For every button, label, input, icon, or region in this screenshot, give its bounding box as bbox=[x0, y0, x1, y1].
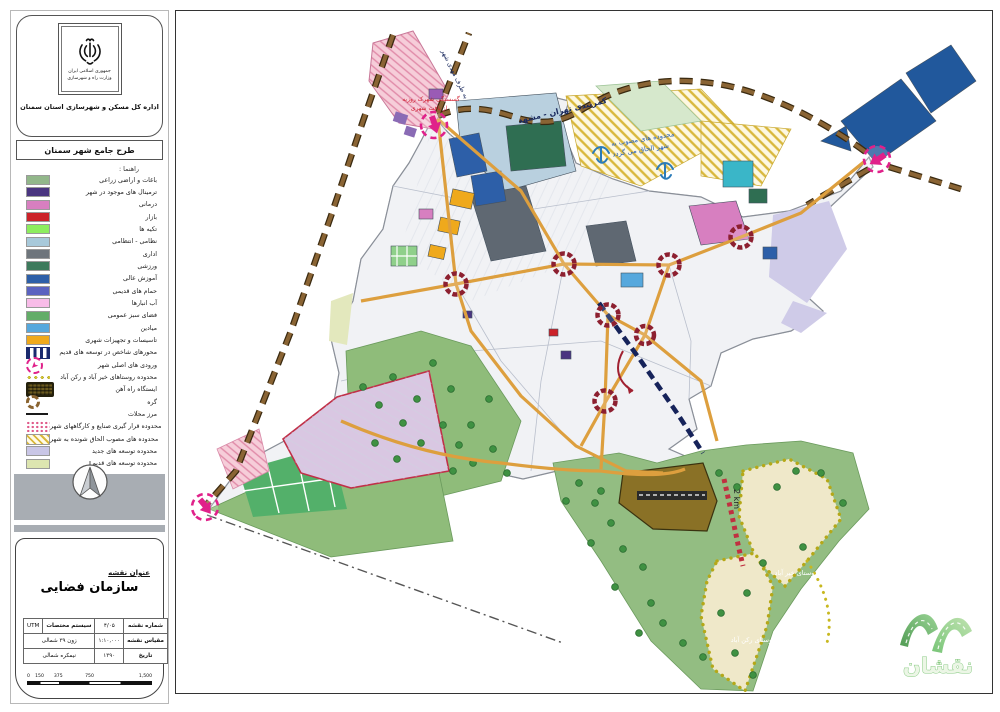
legend-item: محدوده توسعه های جدید bbox=[20, 445, 161, 457]
legend-item: بازار bbox=[20, 211, 161, 223]
legend-item: آب انبارها bbox=[20, 297, 161, 309]
emblem-frame: جمهوری اسلامی ایران وزارت راه و شهرسازی bbox=[58, 23, 122, 95]
date-label: تاریخ bbox=[124, 649, 168, 664]
legend-item: تکیه ها bbox=[20, 223, 161, 235]
legend-item: مرز محلات bbox=[20, 408, 161, 420]
legend-swatch bbox=[26, 274, 50, 284]
legend-swatch bbox=[26, 395, 40, 409]
legend-swatch bbox=[26, 374, 50, 381]
agency-card: جمهوری اسلامی ایران وزارت راه و شهرسازی … bbox=[16, 15, 163, 137]
legend-label: حمام های قدیمی bbox=[50, 288, 161, 295]
legend-item: حمام های قدیمی bbox=[20, 285, 161, 297]
label-note-red-2: از بافت شهری bbox=[411, 105, 448, 112]
legend-label: بازار bbox=[50, 214, 161, 221]
legend-item: آموزش عالی bbox=[20, 273, 161, 285]
legend-label: ترمینال های موجود در شهر bbox=[50, 189, 161, 196]
legend-label: ورودی های اصلی شهر bbox=[43, 362, 161, 369]
legend-item: تاسیسات و تجهیزات شهری bbox=[20, 334, 161, 346]
city-map: به طرف مهدی شهر کمربندی تهران - مشهد گسس… bbox=[176, 11, 994, 695]
legend-swatch bbox=[26, 335, 50, 345]
map-panel: به طرف مهدی شهر کمربندی تهران - مشهد گسس… bbox=[175, 10, 993, 694]
legend-swatch bbox=[26, 459, 50, 469]
legend-item: میادین bbox=[20, 322, 161, 334]
legend-item: اداری bbox=[20, 248, 161, 260]
plan-title: طرح جامع شهر سمنان bbox=[16, 140, 163, 160]
label-distance: 2 km bbox=[732, 489, 741, 509]
legend-item: باغات و اراضی زراعی bbox=[20, 174, 161, 186]
legend-swatch bbox=[26, 200, 50, 210]
legend-swatch bbox=[26, 323, 50, 333]
legend-item: ترمینال های موجود در شهر bbox=[20, 186, 161, 198]
legend-item: محدوده قرار گیری صنایع و کارگاههای شهر bbox=[20, 421, 161, 433]
sheet-sidebar: جمهوری اسلامی ایران وزارت راه و شهرسازی … bbox=[10, 10, 169, 704]
legend-swatch bbox=[26, 249, 50, 259]
map-no-value: ۴/۰۵ bbox=[95, 619, 124, 634]
legend-item: محدوده های مصوب الحاق شونده به شهر bbox=[20, 433, 161, 445]
legend-label: محورهای شاخص در توسعه های قدیم bbox=[50, 349, 161, 356]
watermark-logo: نقشان bbox=[892, 587, 984, 687]
iran-emblem-icon bbox=[75, 36, 105, 68]
legend-swatch bbox=[26, 357, 43, 374]
date-value: ۱۳۹۰ bbox=[95, 649, 124, 664]
coord-value: UTM bbox=[24, 619, 43, 634]
legend-swatch bbox=[26, 261, 50, 271]
legend-label: فضای سبز عمومی bbox=[50, 312, 161, 319]
scale-bar: 01503757501,500 bbox=[27, 674, 152, 690]
legend-label: محدوده روستاهای خیر آباد و رکن آباد bbox=[50, 374, 161, 381]
legend-swatch bbox=[26, 286, 50, 296]
legend-label: آموزش عالی bbox=[50, 275, 161, 282]
map-sheet-page: { "sidebar": { "country": "جمهوری اسلامی… bbox=[0, 0, 1000, 712]
north-arrow-icon bbox=[69, 458, 111, 514]
legend-label: محدوده توسعه های جدید bbox=[50, 448, 161, 455]
label-note-red-1: گسستگی شهرک روزیه bbox=[402, 95, 460, 103]
legend-item: محورهای شاخص در توسعه های قدیم bbox=[20, 347, 161, 359]
ministry-name: وزارت راه و شهرسازی bbox=[67, 76, 111, 82]
label-village-kheyrabad: روستای خیر آباد bbox=[775, 568, 818, 577]
map-title: سازمان فضایی bbox=[23, 578, 156, 605]
legend-swatch bbox=[26, 446, 50, 456]
legend-label: ورزشی bbox=[50, 263, 161, 270]
legend-item: ورودی های اصلی شهر bbox=[20, 359, 161, 371]
office-name: اداره کل مسکن و شهرسازی استان سمنان bbox=[20, 103, 159, 111]
legend-swatch bbox=[26, 224, 50, 234]
legend-swatch bbox=[26, 413, 48, 415]
legend-swatch bbox=[26, 421, 50, 432]
legend-label: باغات و اراضی زراعی bbox=[50, 177, 161, 184]
country-name: جمهوری اسلامی ایران bbox=[68, 69, 111, 75]
watermark-text: نقشان bbox=[903, 654, 973, 678]
legend-label: ایستگاه راه آهن bbox=[54, 386, 161, 393]
legend-swatch bbox=[26, 187, 50, 197]
legend-swatch bbox=[26, 311, 50, 321]
legend-list: باغات و اراضی زراعی ترمینال های موجود در… bbox=[14, 174, 165, 470]
legend-item: ایستگاه راه آهن bbox=[20, 384, 161, 396]
coord-label: سیستم مختصات bbox=[43, 619, 95, 634]
legend-label: آب انبارها bbox=[50, 300, 161, 307]
scale-ticks: 01503757501,500 bbox=[27, 674, 152, 681]
legend-label: تاسیسات و تجهیزات شهری bbox=[50, 337, 161, 344]
legend-swatch bbox=[26, 298, 50, 308]
legend-item: درمانی bbox=[20, 199, 161, 211]
map-no-label: شماره نقشه bbox=[124, 619, 168, 634]
zone-value: زون ۳۹ شمالی bbox=[24, 634, 95, 649]
legend-swatch bbox=[26, 237, 50, 247]
compass-strip bbox=[14, 474, 165, 520]
label-village-roknabad: روستای رکن آباد bbox=[731, 635, 776, 644]
legend-swatch bbox=[26, 434, 50, 445]
legend-label: اداری bbox=[50, 251, 161, 258]
legend-label: میادین bbox=[50, 325, 161, 332]
legend-label: نظامی - انتظامی bbox=[50, 238, 161, 245]
legend-label: درمانی bbox=[50, 201, 161, 208]
legend-heading: راهنما : bbox=[14, 162, 165, 174]
legend-label: گره bbox=[40, 399, 161, 406]
scale-bar-strip bbox=[27, 681, 152, 685]
divider-band bbox=[14, 525, 165, 532]
legend-swatch bbox=[26, 212, 50, 222]
meta-table: شماره نقشه ۴/۰۵ سیستم مختصات UTM مقیاس ن… bbox=[23, 618, 168, 664]
scale-value: ۱:۱۰,۰۰۰ bbox=[95, 634, 124, 649]
title-block-heading: عنوان نقشه bbox=[23, 543, 156, 578]
legend-label: محدوده های مصوب الحاق شونده به شهر bbox=[50, 436, 162, 443]
legend-item: گره bbox=[20, 396, 161, 408]
legend-swatch bbox=[26, 175, 50, 185]
hemisphere-value: نیمکره شمالی bbox=[24, 649, 95, 664]
legend-label: تکیه ها bbox=[50, 226, 161, 233]
title-block: عنوان نقشه سازمان فضایی شماره نقشه ۴/۰۵ … bbox=[15, 538, 164, 699]
scale-label: مقیاس نقشه bbox=[124, 634, 168, 649]
legend-label: محدوده قرار گیری صنایع و کارگاههای شهر bbox=[50, 423, 165, 430]
legend-item: ورزشی bbox=[20, 260, 161, 272]
legend-item: فضای سبز عمومی bbox=[20, 310, 161, 322]
legend-item: نظامی - انتظامی bbox=[20, 236, 161, 248]
legend-label: مرز محلات bbox=[48, 411, 161, 418]
